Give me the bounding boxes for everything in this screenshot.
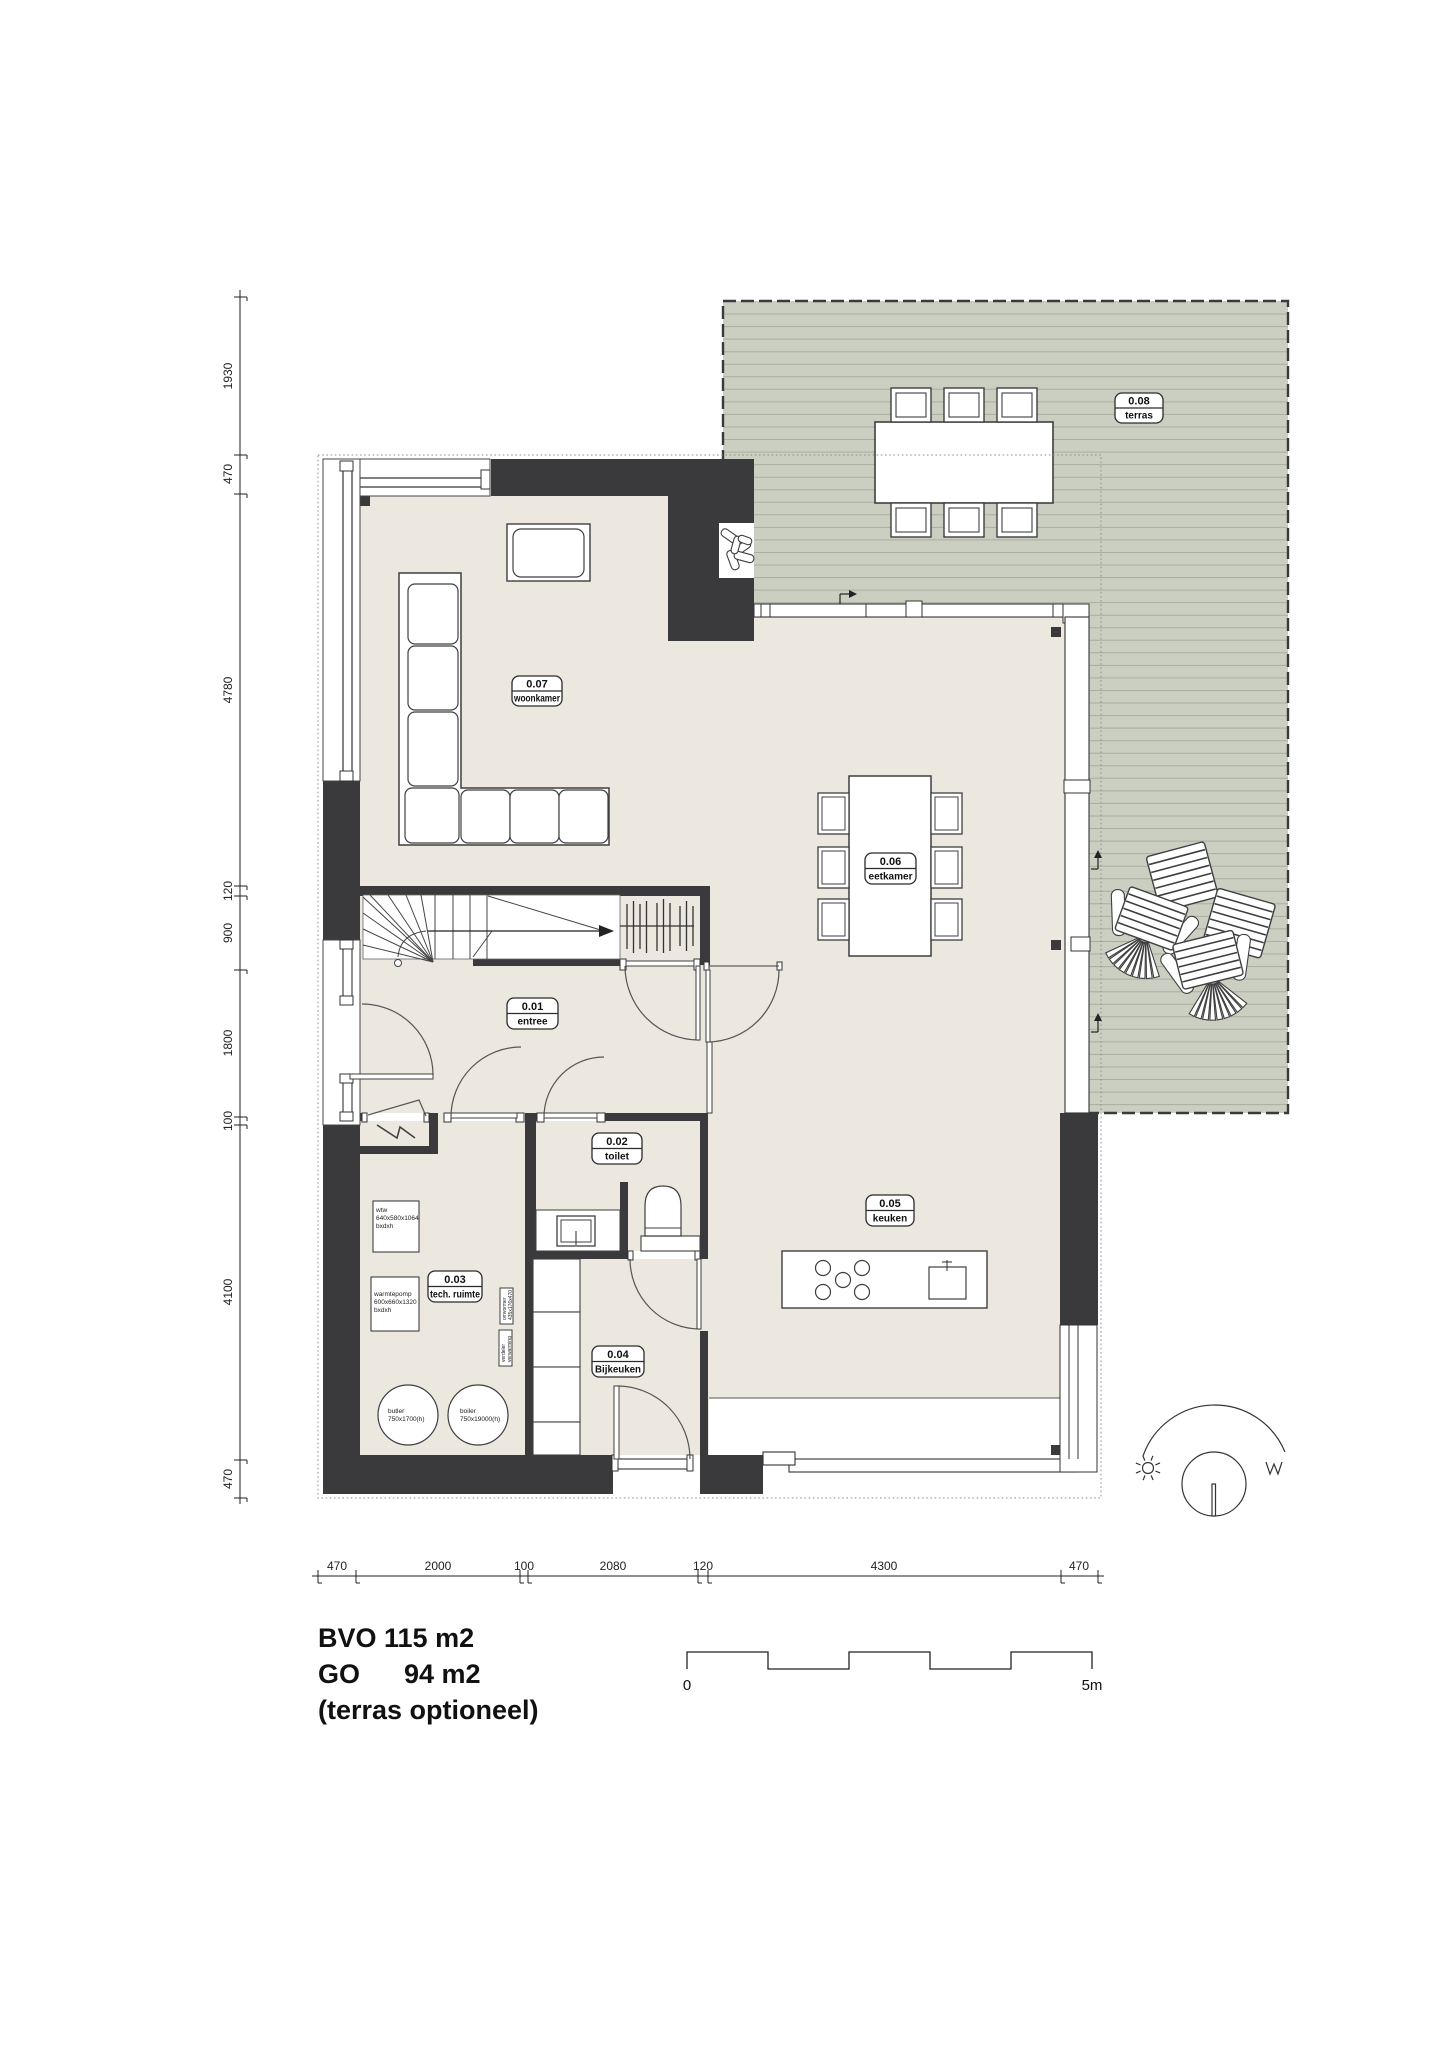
svg-text:0: 0	[683, 1677, 691, 1694]
svg-text:120: 120	[221, 881, 235, 901]
svg-text:900: 900	[221, 923, 235, 943]
svg-text:4100: 4100	[221, 1278, 235, 1305]
svg-text:wtw: wtw	[375, 1207, 388, 1214]
svg-text:1800: 1800	[221, 1029, 235, 1056]
svg-text:2000: 2000	[425, 1559, 452, 1573]
svg-text:0.04: 0.04	[607, 1349, 629, 1361]
svg-text:1930: 1930	[221, 362, 235, 389]
svg-text:4780: 4780	[221, 676, 235, 703]
svg-text:keuken: keuken	[873, 1214, 907, 1225]
svg-text:600x660x1320: 600x660x1320	[374, 1299, 417, 1306]
svg-text:0.03: 0.03	[444, 1274, 465, 1286]
svg-text:butler: butler	[388, 1408, 405, 1415]
svg-text:GO: GO	[318, 1659, 360, 1689]
svg-text:boiler: boiler	[460, 1408, 477, 1415]
svg-text:5m: 5m	[1082, 1677, 1103, 1694]
svg-text:bxdxh: bxdxh	[376, 1223, 394, 1230]
svg-text:Bijkeuken: Bijkeuken	[595, 1365, 641, 1376]
svg-text:640x580x1064: 640x580x1064	[376, 1215, 419, 1222]
svg-text:470: 470	[1069, 1559, 1089, 1573]
svg-text:750x19000(h): 750x19000(h)	[460, 1416, 500, 1423]
svg-text:470: 470	[221, 1469, 235, 1489]
svg-text:0.08: 0.08	[1128, 396, 1149, 408]
svg-text:BVO 115 m2: BVO 115 m2	[318, 1623, 474, 1653]
svg-text:terras: terras	[1125, 411, 1153, 422]
svg-text:eetkamer: eetkamer	[869, 872, 913, 883]
svg-text:100: 100	[514, 1559, 534, 1573]
svg-text:tech. ruimte: tech. ruimte	[430, 1290, 480, 1301]
svg-text:750x1700(h): 750x1700(h)	[388, 1416, 425, 1423]
svg-text:470: 470	[221, 464, 235, 484]
svg-text:120: 120	[693, 1559, 713, 1573]
svg-text:verwarming: verwarming	[507, 1336, 513, 1362]
svg-text:470: 470	[327, 1559, 347, 1573]
svg-text:0.07: 0.07	[526, 679, 547, 691]
svg-text:0.05: 0.05	[879, 1198, 900, 1210]
svg-text:435x176x470: 435x176x470	[508, 1290, 514, 1320]
svg-text:bxdxh: bxdxh	[374, 1307, 392, 1314]
svg-text:0.01: 0.01	[522, 1001, 543, 1013]
svg-text:0.02: 0.02	[606, 1136, 627, 1148]
svg-text:woonkamer: woonkamer	[513, 694, 560, 705]
svg-text:2080: 2080	[600, 1559, 627, 1573]
svg-text:toilet: toilet	[605, 1152, 630, 1163]
svg-text:100: 100	[221, 1111, 235, 1131]
svg-text:(terras optioneel): (terras optioneel)	[318, 1695, 539, 1725]
svg-text:warmtepomp: warmtepomp	[373, 1291, 412, 1298]
svg-text:0.06: 0.06	[880, 856, 901, 868]
svg-text:entree: entree	[517, 1017, 547, 1028]
svg-text:4300: 4300	[871, 1559, 898, 1573]
svg-text:94 m2: 94 m2	[404, 1659, 481, 1689]
